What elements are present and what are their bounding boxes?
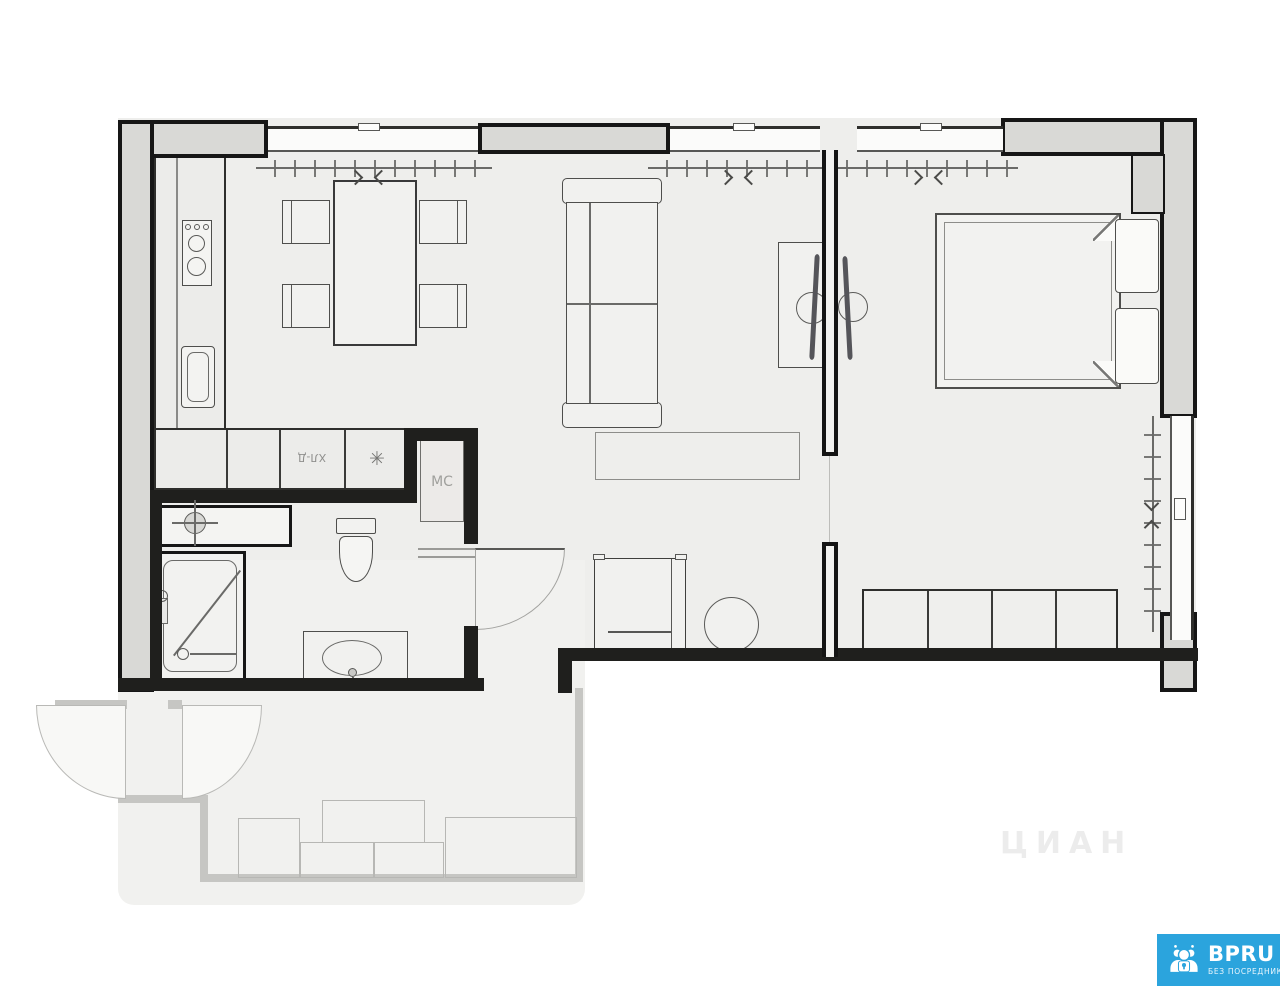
armchair-seat-line [608, 631, 672, 633]
wall [558, 648, 572, 693]
bed [935, 213, 1121, 389]
wall [150, 503, 162, 683]
wall [478, 123, 670, 154]
sofa-cushion-line [567, 303, 657, 305]
stove [182, 220, 212, 286]
window-mullion [920, 123, 942, 131]
kitchen-base-cabinets: ХЛ-Д ✳ [154, 428, 408, 490]
armchair [594, 558, 686, 650]
washer-closet-label: МС [421, 469, 463, 495]
window-mullion [358, 123, 380, 131]
stove-knob [203, 224, 209, 230]
sofa-body [566, 202, 658, 404]
wall [150, 490, 408, 503]
pillow [1115, 308, 1159, 384]
cabinet-divider [226, 430, 228, 488]
wall [558, 648, 1198, 661]
fridge-label: ХЛ-Д [280, 438, 344, 478]
faucet [348, 668, 357, 677]
people-group-icon [1167, 943, 1201, 977]
stove-knob [185, 224, 191, 230]
wall-partition [822, 542, 838, 657]
shower-drain [177, 648, 189, 660]
toilet-tank [336, 518, 376, 534]
hall-cabinet [322, 800, 425, 843]
washer-closet: МС [420, 440, 464, 522]
chair-backrest [457, 285, 466, 327]
armchair-arm [671, 559, 673, 649]
counter-edge-line [176, 158, 178, 428]
drain-line [190, 653, 236, 655]
sofa-armrest [562, 178, 662, 204]
dining-table [333, 180, 417, 346]
wall [464, 428, 478, 544]
stove-knob [194, 224, 200, 230]
kitchen-sink [181, 346, 215, 408]
window-handle [1174, 498, 1186, 520]
bathroom-shelf [150, 505, 292, 547]
window [1170, 416, 1194, 640]
bpru-logo-badge[interactable]: BPRU БЕЗ ПОСРЕДНИКОВ [1157, 934, 1280, 986]
wall-faded [200, 795, 208, 881]
logo-brand-text: BPRU [1208, 944, 1280, 965]
sofa-armrest [562, 402, 662, 428]
wall [1160, 118, 1197, 418]
floor-plan-image: ХЛ-Д ✳ МС [0, 0, 1280, 986]
chair-backrest [457, 201, 466, 243]
entrance-door-swing [36, 705, 126, 799]
fixture-tick [194, 500, 196, 546]
wall-pier [1131, 154, 1165, 214]
dining-chair [282, 200, 330, 244]
dining-chair [282, 284, 330, 328]
armchair-arm [608, 559, 610, 649]
stove-burner [187, 257, 206, 276]
stove-burner [188, 235, 205, 252]
bed-inner-line [944, 222, 1112, 380]
sink-basin [187, 352, 209, 402]
doorway-line [829, 456, 830, 542]
hall-cabinet [300, 842, 374, 878]
dining-chair [419, 284, 467, 328]
hall-cabinet [238, 818, 300, 878]
corridor-line [418, 548, 480, 550]
hall-cabinet [374, 842, 444, 878]
rug [595, 432, 800, 480]
wall-partition [822, 150, 838, 456]
wardrobe-divider [991, 591, 993, 652]
curtain-rail-line [256, 167, 492, 169]
armchair-foot [675, 554, 687, 560]
wardrobe-divider [1055, 591, 1057, 652]
wall [118, 120, 154, 692]
side-table [704, 597, 759, 652]
wardrobe-divider [927, 591, 929, 652]
chair-backrest [283, 201, 292, 243]
wall [464, 626, 478, 688]
window-mullion [733, 123, 755, 131]
pillow [1115, 219, 1159, 293]
logo-tagline-text: БЕЗ ПОСРЕДНИКОВ [1208, 968, 1280, 976]
tv-mount-circle [838, 292, 868, 322]
wardrobe [862, 589, 1118, 654]
chair-backrest [283, 285, 292, 327]
snowflake-icon: ✳ [346, 438, 408, 480]
dining-chair [419, 200, 467, 244]
wall [118, 678, 484, 691]
hall-cabinet [445, 817, 577, 878]
corridor-line [418, 556, 480, 558]
watermark-text: ЦИАН [1000, 826, 1133, 861]
armchair-foot [593, 554, 605, 560]
wall-faded [168, 700, 182, 709]
